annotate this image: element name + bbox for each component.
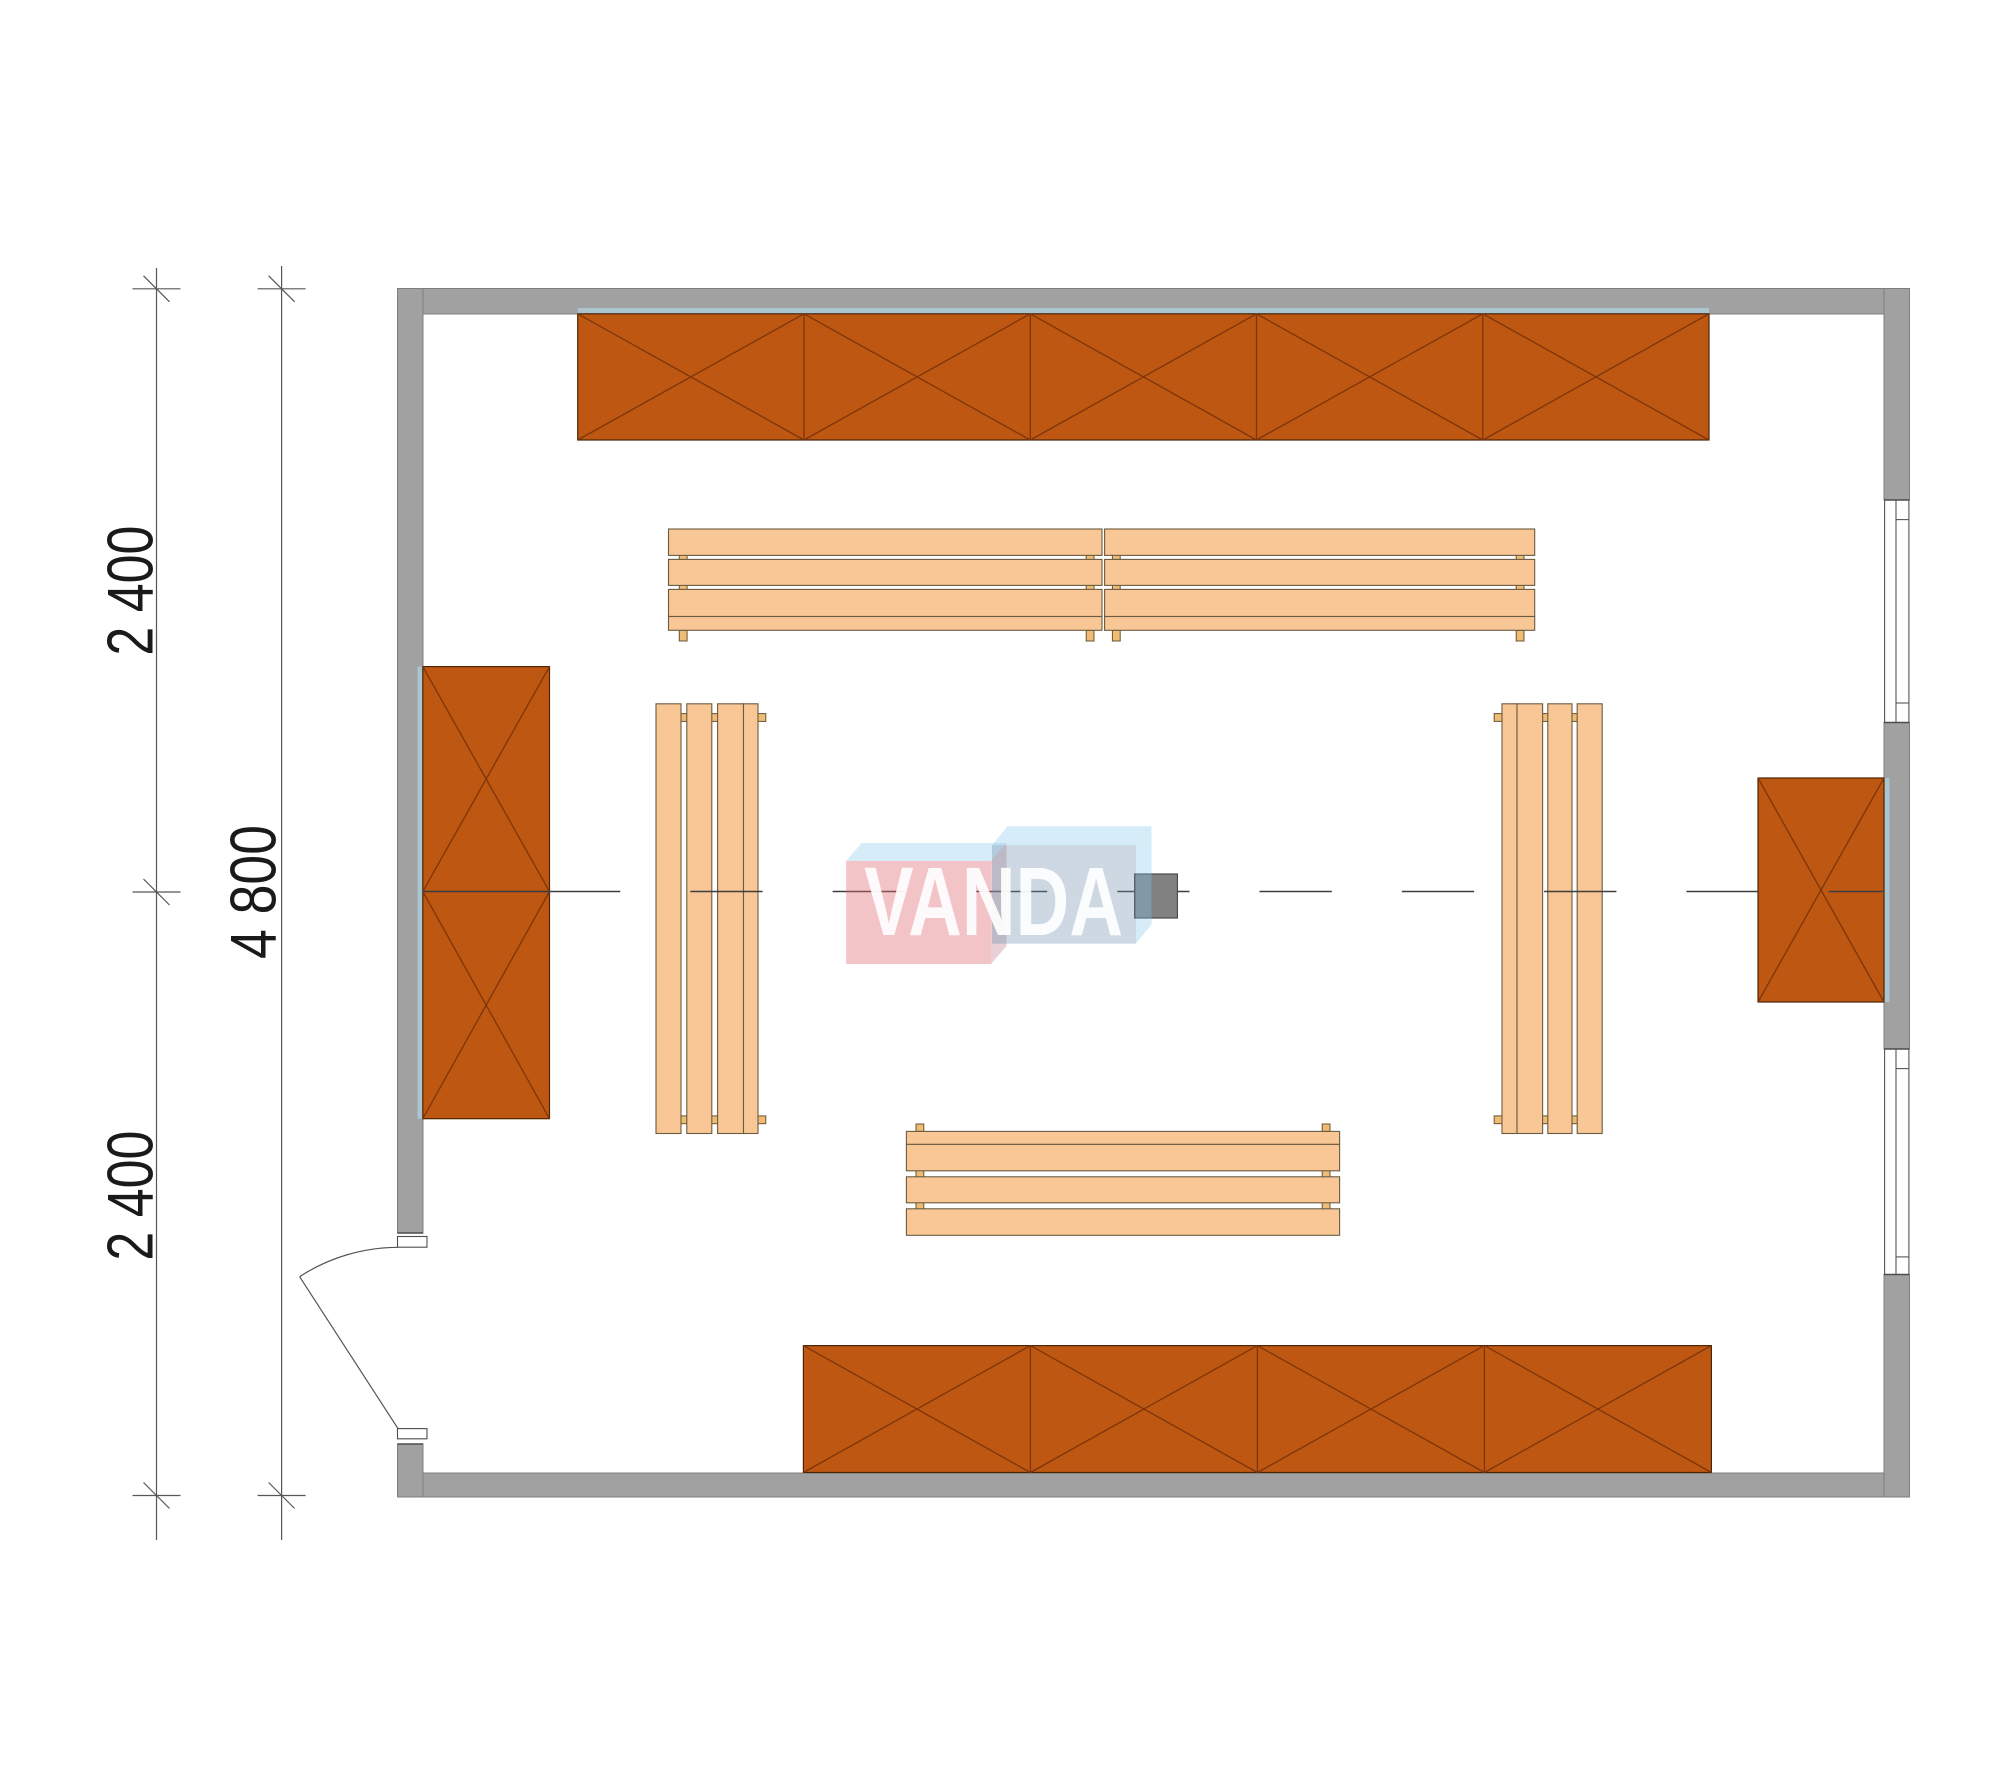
svg-text:VANDA: VANDA [864, 847, 1123, 956]
svg-text:2 400: 2 400 [94, 526, 167, 656]
svg-text:2 400: 2 400 [94, 1131, 167, 1261]
svg-text:4 800: 4 800 [217, 825, 290, 959]
